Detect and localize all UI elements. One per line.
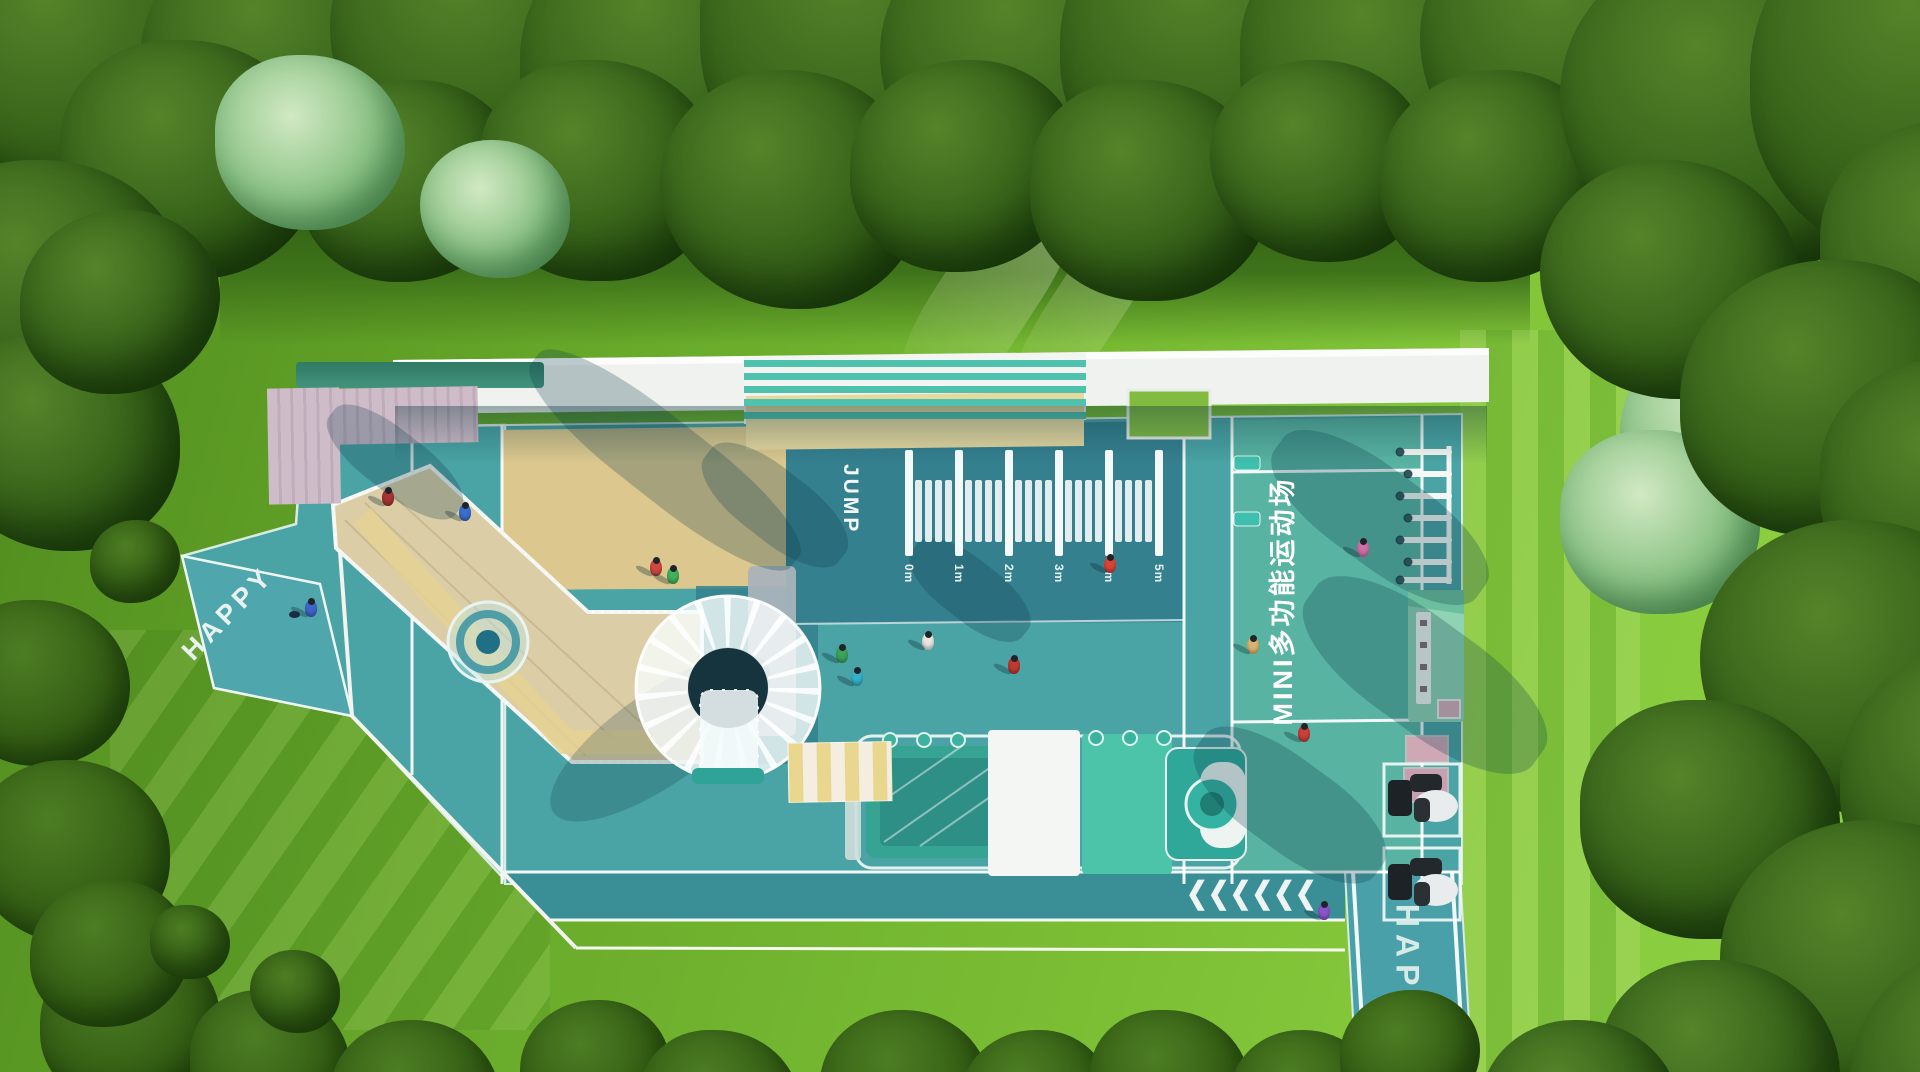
aerial-playground-scene: HAPPY JUMP 0m1m2m3m4m5m MINI多功能运动场 ❮❮❮❮❮… bbox=[0, 0, 1920, 1072]
person-figure bbox=[1298, 725, 1310, 742]
bush bbox=[150, 905, 230, 979]
ruler-major-bar bbox=[955, 450, 963, 556]
person-head bbox=[653, 557, 660, 564]
person-figure bbox=[836, 646, 848, 663]
person-figure bbox=[851, 669, 863, 686]
ruler-minor-bar bbox=[1075, 480, 1082, 542]
person-figure bbox=[382, 489, 394, 506]
ruler-minor-bar bbox=[975, 480, 982, 542]
ruler-minor-bar bbox=[915, 480, 922, 542]
dog-figure bbox=[289, 611, 300, 618]
ruler-minor-bar bbox=[945, 480, 952, 542]
person-head bbox=[1321, 901, 1328, 908]
ruler-minor-bar bbox=[1035, 480, 1042, 542]
person-head bbox=[1107, 554, 1114, 561]
person-figure bbox=[1247, 637, 1259, 654]
jump-ruler: 0m1m2m3m4m5m bbox=[905, 450, 1175, 600]
ruler-tick-label: 5m bbox=[1152, 564, 1166, 583]
person-head bbox=[462, 502, 469, 509]
ruler-major-bar bbox=[1005, 450, 1013, 556]
ruler-minor-bar bbox=[1125, 480, 1132, 542]
person-head bbox=[1301, 723, 1308, 730]
person-head bbox=[925, 631, 932, 638]
person-head bbox=[1011, 655, 1018, 662]
train-play-structure bbox=[845, 730, 1246, 876]
person-head bbox=[670, 565, 677, 572]
ruler-major-bar bbox=[1105, 450, 1113, 556]
person-head bbox=[1360, 538, 1367, 545]
ruler-minor-bar bbox=[1085, 480, 1092, 542]
ruler-minor-bar bbox=[1095, 480, 1102, 542]
ruler-minor-bar bbox=[1015, 480, 1022, 542]
person-figure bbox=[1104, 556, 1116, 573]
person-figure bbox=[922, 633, 934, 650]
bush bbox=[250, 950, 340, 1033]
ruler-minor-bar bbox=[995, 480, 1002, 542]
jump-marking: JUMP bbox=[838, 464, 862, 534]
ruler-tick-label: 0m bbox=[902, 564, 916, 583]
person-figure bbox=[1008, 657, 1020, 674]
lane-bench bbox=[1234, 512, 1260, 526]
track-chevrons: ❮❮❮❮❮❮ bbox=[1186, 875, 1296, 914]
ruler-tick-label: 1m bbox=[952, 564, 966, 583]
person-head bbox=[854, 667, 861, 674]
boardwalk bbox=[267, 387, 341, 504]
ruler-minor-bar bbox=[1045, 480, 1052, 542]
ruler-major-bar bbox=[1155, 450, 1163, 556]
ruler-major-bar bbox=[1055, 450, 1063, 556]
striped-walkway bbox=[787, 741, 892, 803]
ruler-major-bar bbox=[905, 450, 913, 556]
person-head bbox=[1250, 635, 1257, 642]
person-head bbox=[308, 598, 315, 605]
ruler-minor-bar bbox=[985, 480, 992, 542]
ruler-minor-bar bbox=[1145, 480, 1152, 542]
ruler-minor-bar bbox=[935, 480, 942, 542]
person-head bbox=[385, 487, 392, 494]
ruler-minor-bar bbox=[965, 480, 972, 542]
ruler-minor-bar bbox=[1135, 480, 1142, 542]
ruler-minor-bar bbox=[1025, 480, 1032, 542]
spiral-climber bbox=[448, 602, 528, 682]
ruler-tick-label: 2m bbox=[1002, 564, 1016, 583]
person-figure bbox=[1357, 540, 1369, 557]
ruler-minor-bar bbox=[1065, 480, 1072, 542]
hedge-strip bbox=[296, 362, 544, 388]
person-figure bbox=[667, 567, 679, 584]
ruler-minor-bar bbox=[1115, 480, 1122, 542]
person-head bbox=[839, 644, 846, 651]
lane-title-marking: MINI多功能运动场 bbox=[1261, 451, 1295, 751]
person-figure bbox=[459, 504, 471, 521]
ruler-minor-bar bbox=[925, 480, 932, 542]
person-figure bbox=[1318, 903, 1330, 920]
ruler-tick-label: 3m bbox=[1052, 564, 1066, 583]
person-figure bbox=[305, 600, 317, 617]
